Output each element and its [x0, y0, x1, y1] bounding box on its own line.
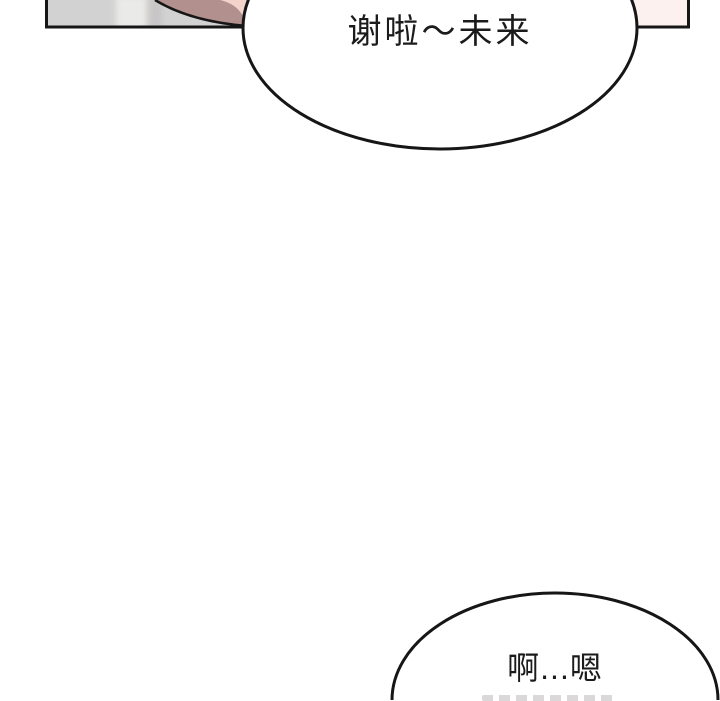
- clipped-next-text-line: [482, 695, 614, 701]
- comic-artwork: [0, 0, 720, 700]
- comic-page: { "comic": { "bubble_top": { "text": "谢啦…: [0, 0, 720, 700]
- speech-bubble-top-text: 谢啦～未来: [240, 15, 640, 51]
- speech-bubble-bottom-text: 啊...嗯: [405, 652, 705, 686]
